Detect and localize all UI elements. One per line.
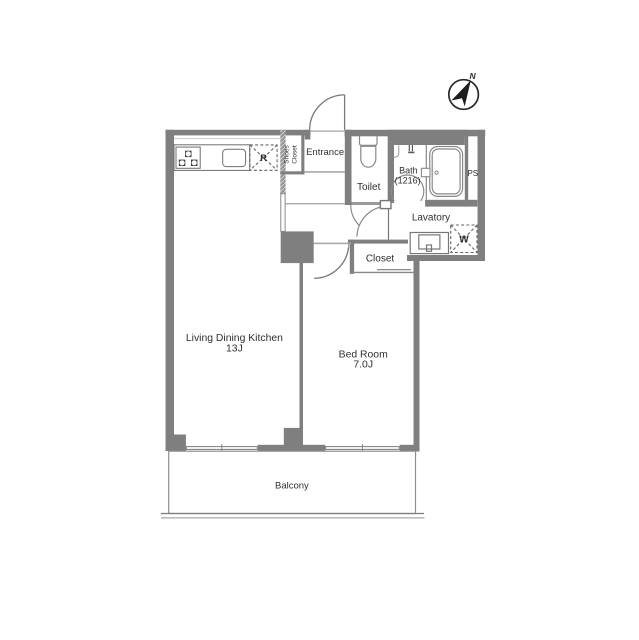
svg-text:7.0J: 7.0J [353,359,373,370]
svg-text:Balcony: Balcony [275,481,309,492]
svg-text:R: R [260,153,267,164]
svg-text:Entrance: Entrance [306,147,344,158]
svg-text:Living Dining Kitchen: Living Dining Kitchen [186,333,283,344]
svg-text:PS: PS [467,169,478,178]
svg-text:N: N [470,71,477,81]
svg-text:Bath: Bath [399,166,418,176]
svg-text:Closet: Closet [291,145,298,164]
svg-text:Closet: Closet [366,254,395,265]
svg-text:W: W [459,235,469,246]
svg-text:Lavatory: Lavatory [412,212,450,223]
svg-text:Shoes: Shoes [284,145,291,164]
svg-text:Toilet: Toilet [357,182,381,193]
svg-text:13J: 13J [226,343,243,354]
svg-text:(1216): (1216) [395,176,421,186]
